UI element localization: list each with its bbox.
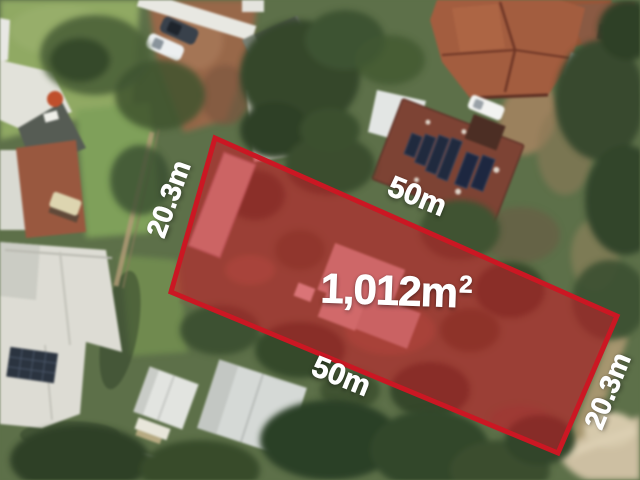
aerial-listing-image: 20.3m 50m 1,012m2 50m 20.3m xyxy=(0,0,640,480)
area-label: 1,012m2 xyxy=(320,264,472,317)
parcel-overlay xyxy=(0,0,640,480)
area-value: 1,012m xyxy=(320,264,458,316)
area-exponent: 2 xyxy=(459,271,472,298)
